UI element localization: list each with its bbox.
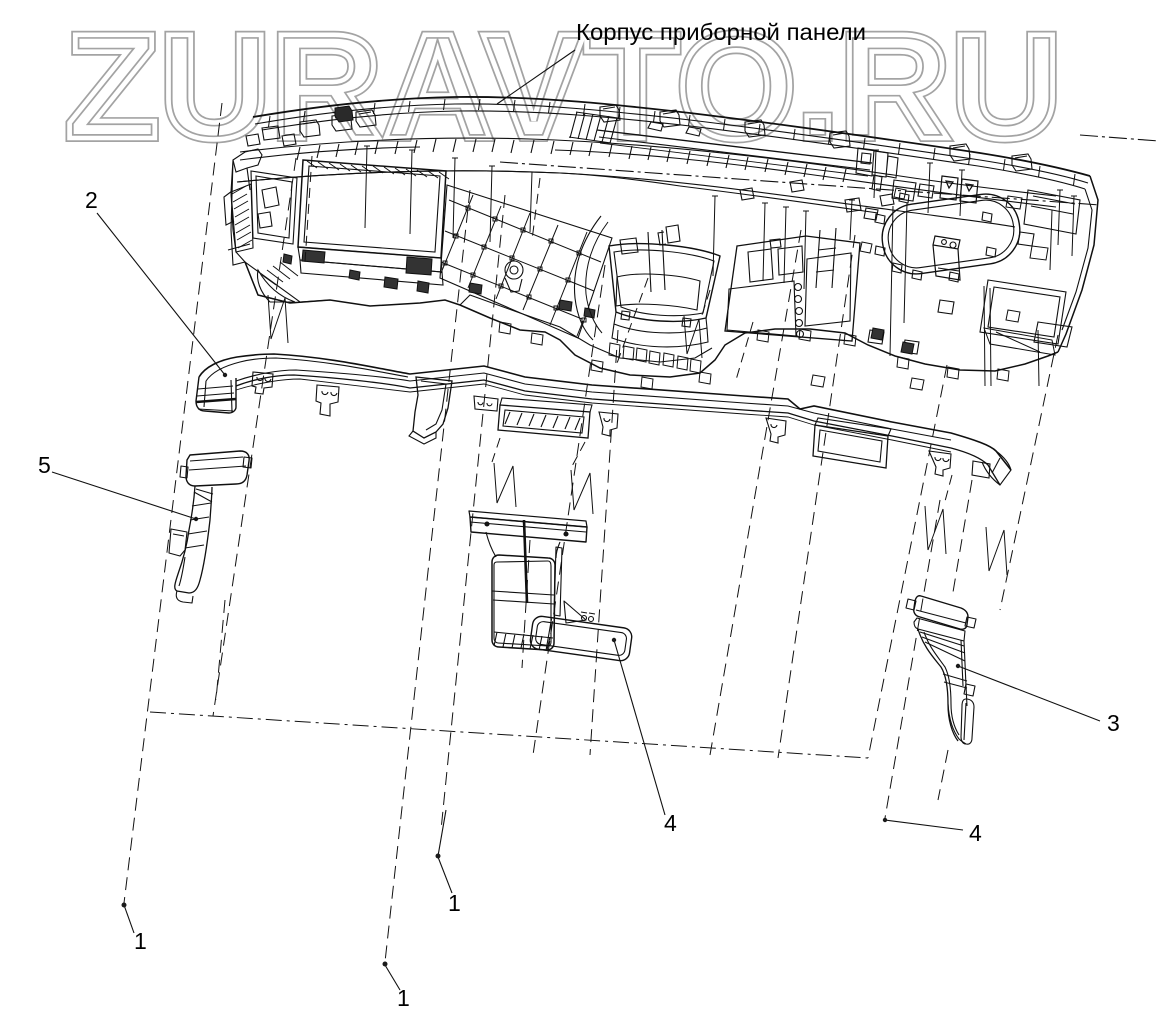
svg-text:4: 4 [969, 820, 982, 846]
svg-text:4: 4 [664, 810, 677, 836]
svg-text:1: 1 [448, 890, 461, 916]
svg-text:Корпус приборной панели: Корпус приборной панели [576, 19, 866, 45]
svg-text:2: 2 [85, 187, 98, 213]
svg-text:1: 1 [397, 985, 410, 1011]
svg-text:ZURAVTO.RU: ZURAVTO.RU [65, 2, 1062, 170]
svg-text:1: 1 [134, 928, 147, 954]
svg-text:5: 5 [38, 452, 51, 478]
svg-text:3: 3 [1107, 710, 1120, 736]
